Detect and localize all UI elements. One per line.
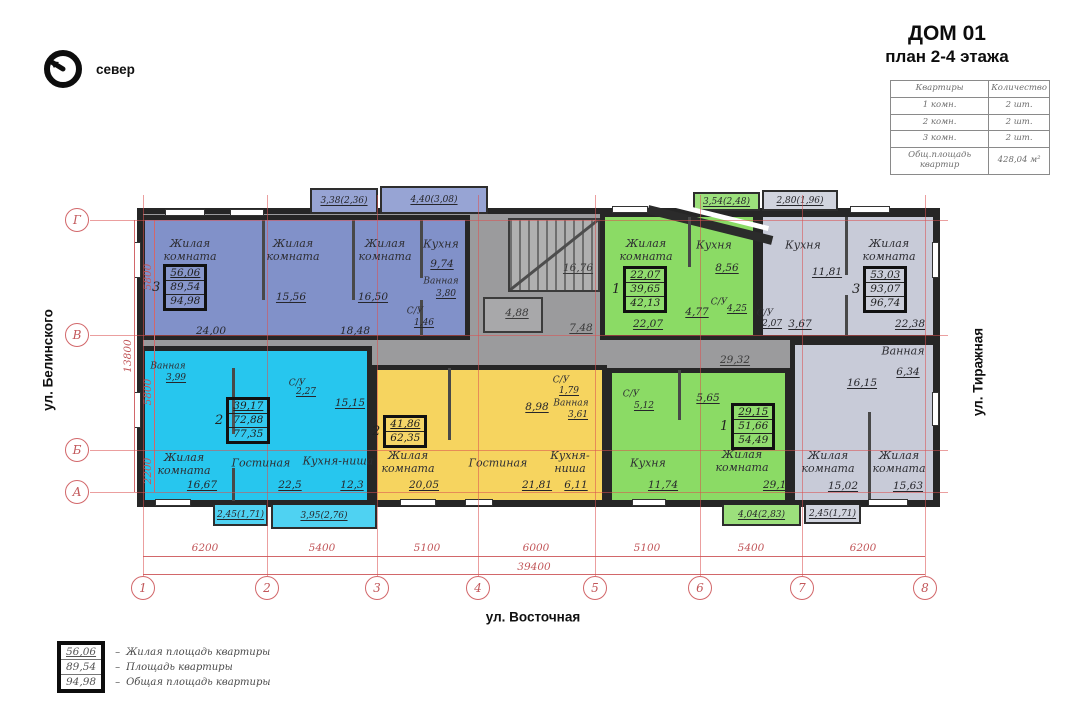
table-footer-row: Общ.площадь квартир 428,04 м² bbox=[891, 148, 1050, 175]
staircase bbox=[508, 218, 600, 292]
room-area: 1,46 bbox=[414, 318, 434, 328]
grid-bubble-6: 6 bbox=[688, 576, 712, 600]
window bbox=[465, 499, 493, 506]
dimension-value: 5100 bbox=[634, 542, 661, 554]
room-label: С/У bbox=[407, 307, 423, 318]
cell-count: 2 шт. bbox=[989, 114, 1050, 131]
living-area-value: 29,15 bbox=[734, 406, 772, 420]
room-area: 15,63 bbox=[893, 480, 923, 492]
apartment-area-box: 39,17 72,88 77,35 bbox=[226, 397, 270, 444]
room-area: 8,98 bbox=[525, 401, 548, 413]
room-area: 3,80 bbox=[436, 289, 456, 299]
cell-count: 2 шт. bbox=[989, 131, 1050, 148]
grid-line bbox=[802, 195, 803, 576]
apartment-area-value: 39,65 bbox=[626, 283, 664, 297]
living-area-value: 39,17 bbox=[229, 400, 267, 414]
apartment-area-value: 72,88 bbox=[229, 414, 267, 428]
total-area-value: 42,13 bbox=[626, 297, 664, 310]
room-area: 8,56 bbox=[715, 262, 738, 274]
balcony: 4,40(3,08) bbox=[380, 186, 488, 214]
room-label: Жилая комната bbox=[608, 237, 684, 263]
dimension-value: 5800 bbox=[142, 379, 154, 406]
balcony-area: 3,95(2,76) bbox=[300, 511, 347, 521]
room-area: 5,65 bbox=[696, 392, 719, 404]
window bbox=[165, 209, 205, 216]
grid-line bbox=[478, 195, 479, 576]
balcony: 2,80(1,96) bbox=[762, 190, 838, 211]
window bbox=[868, 499, 908, 506]
window bbox=[134, 392, 141, 428]
grid-bubble-8: 8 bbox=[913, 576, 937, 600]
dimension-line bbox=[143, 574, 925, 575]
title-block: ДОМ 01 план 2-4 этажа bbox=[832, 22, 1062, 67]
room-area: 4,25 bbox=[727, 304, 747, 314]
dimension-line bbox=[143, 556, 925, 557]
room-label: Кухня bbox=[785, 238, 821, 251]
room-area: 5,12 bbox=[634, 401, 654, 411]
legend-dash: – bbox=[115, 676, 120, 689]
cell-type: 2 комн. bbox=[891, 114, 989, 131]
elevator-area: 4,88 bbox=[505, 307, 528, 319]
window bbox=[155, 499, 191, 506]
dimension-value: 5400 bbox=[309, 542, 336, 554]
partition-wall bbox=[845, 295, 848, 335]
apartment-stats: 2 39,17 72,88 77,35 bbox=[215, 397, 270, 444]
balcony-area: 4,40(3,08) bbox=[410, 195, 457, 205]
room-label: Жилая комната bbox=[154, 237, 226, 263]
window bbox=[134, 242, 141, 278]
legend-row: – Площадь квартиры bbox=[115, 661, 270, 674]
apartment-area-box: 29,15 51,66 54,49 bbox=[731, 403, 775, 450]
cell-type: 1 комн. bbox=[891, 97, 989, 114]
north-arrow-icon bbox=[40, 46, 86, 92]
sheet-title: ДОМ 01 bbox=[832, 22, 1062, 46]
living-area-value: 22,07 bbox=[626, 269, 664, 283]
room-area: 2,07 bbox=[762, 319, 782, 329]
room-area: 20,05 bbox=[409, 479, 439, 491]
legend: 56,06 89,54 94,98 – Жилая площадь кварти… bbox=[57, 641, 271, 693]
table-row: 2 комн. 2 шт. bbox=[891, 114, 1050, 131]
total-area-value: 428,04 м² bbox=[989, 148, 1050, 175]
apartment-rooms-count: 2 bbox=[215, 413, 223, 428]
partition-wall bbox=[688, 217, 691, 267]
apartment-area-value: 51,66 bbox=[734, 420, 772, 434]
room-area: 9,74 bbox=[430, 258, 453, 270]
balcony-area: 2,80(1,96) bbox=[776, 196, 823, 206]
room-label: С/У bbox=[623, 390, 639, 401]
apartment-stats: 1 22,07 39,65 42,13 bbox=[612, 266, 667, 313]
apartment-area-value: 93,07 bbox=[866, 283, 904, 297]
grid-line bbox=[90, 220, 948, 221]
total-area-value: 94,98 bbox=[166, 295, 204, 308]
table-header-row: Квартиры Количество bbox=[891, 81, 1050, 98]
compass: север bbox=[40, 46, 135, 92]
balcony-area: 2,45(1,71) bbox=[809, 509, 856, 519]
sheet-subtitle: план 2-4 этажа bbox=[832, 47, 1062, 67]
apartment-area-box: 56,06 89,54 94,98 bbox=[163, 264, 207, 311]
room-label: Гостиная bbox=[469, 456, 528, 469]
legend-value: 89,54 bbox=[61, 660, 101, 675]
apartment-stats: 1 29,15 51,66 54,49 bbox=[720, 403, 775, 450]
dimension-total: 13800 bbox=[122, 339, 134, 372]
legend-label: Общая площадь квартиры bbox=[126, 676, 270, 689]
room-label: С/У bbox=[757, 309, 773, 320]
room-area: 21,81 bbox=[522, 479, 552, 491]
room-label: Ванная bbox=[423, 277, 458, 288]
room-label: Жилая комната bbox=[793, 449, 863, 475]
grid-bubble-g: Г bbox=[65, 208, 89, 232]
room-area: 22,5 bbox=[278, 479, 301, 491]
legend-dash: – bbox=[115, 646, 120, 659]
balcony-area: 2,45(1,71) bbox=[217, 510, 264, 520]
grid-line bbox=[90, 492, 948, 493]
legend-value: 94,98 bbox=[61, 675, 101, 689]
grid-bubble-7: 7 bbox=[790, 576, 814, 600]
room-area: 4,77 bbox=[685, 306, 708, 318]
grid-bubble-3: 3 bbox=[365, 576, 389, 600]
room-area: 6,34 bbox=[896, 366, 919, 378]
corridor-area: 7,48 bbox=[569, 322, 592, 334]
table-row: 1 комн. 2 шт. bbox=[891, 97, 1050, 114]
total-area-value: 77,35 bbox=[229, 428, 267, 441]
legend-row: – Общая площадь квартиры bbox=[115, 676, 270, 689]
window bbox=[400, 499, 436, 506]
room-area: 3,67 bbox=[788, 318, 811, 330]
dimension-value: 5400 bbox=[738, 542, 765, 554]
col-header-count: Количество bbox=[989, 81, 1050, 98]
room-label: Ванная bbox=[882, 344, 925, 357]
window bbox=[932, 242, 939, 278]
room-label: Ванная bbox=[150, 362, 185, 373]
room-area: 15,15 bbox=[335, 397, 365, 409]
room-area: 12,3 bbox=[340, 479, 363, 491]
grid-bubble-2: 2 bbox=[255, 576, 279, 600]
grid-bubble-1: 1 bbox=[131, 576, 155, 600]
apartment-rooms-count: 2 bbox=[372, 424, 380, 439]
window bbox=[850, 206, 890, 213]
cell-type: 3 комн. bbox=[891, 131, 989, 148]
grid-line bbox=[700, 195, 701, 576]
dimension-value: 5100 bbox=[414, 542, 441, 554]
room-label: Жилая комната bbox=[851, 237, 927, 263]
room-area: 3,61 bbox=[568, 410, 588, 420]
col-header-apartments: Квартиры bbox=[891, 81, 989, 98]
balcony-area: 3,54(2,48) bbox=[703, 197, 750, 207]
room-label: С/У bbox=[553, 376, 569, 387]
window bbox=[932, 392, 939, 426]
apartment-rooms-count: 1 bbox=[720, 419, 728, 434]
street-label-left: ул. Белинского bbox=[41, 309, 56, 411]
apartments-summary-table: Квартиры Количество 1 комн. 2 шт. 2 комн… bbox=[890, 80, 1050, 175]
room-area: 1,79 bbox=[559, 386, 579, 396]
room-area: 11,81 bbox=[812, 266, 842, 278]
grid-bubble-4: 4 bbox=[466, 576, 490, 600]
room-area: 22,07 bbox=[633, 318, 663, 330]
apartment-area-box: 41,86 62,35 bbox=[383, 415, 427, 448]
room-label: Кухня bbox=[423, 237, 459, 250]
partition-wall bbox=[448, 368, 451, 440]
balcony: 3,95(2,76) bbox=[271, 503, 377, 529]
apartment-rooms-count: 3 bbox=[852, 282, 860, 297]
room-label: Гостиная bbox=[232, 456, 291, 469]
room-area: 16,50 bbox=[358, 291, 388, 303]
stairs-area: 16,76 bbox=[563, 262, 593, 274]
partition-wall bbox=[678, 370, 681, 420]
legend-labels: – Жилая площадь квартиры – Площадь кварт… bbox=[115, 646, 270, 689]
street-label-bottom: ул. Восточная bbox=[486, 610, 580, 625]
partition-wall bbox=[232, 468, 235, 501]
room-label: Жилая комната bbox=[372, 449, 444, 475]
legend-label: Площадь квартиры bbox=[126, 661, 233, 674]
room-area: 16,15 bbox=[847, 377, 877, 389]
legend-box: 56,06 89,54 94,98 bbox=[57, 641, 105, 693]
legend-value: 56,06 bbox=[61, 645, 101, 660]
room-area: 3,99 bbox=[166, 373, 186, 383]
balcony: 3,54(2,48) bbox=[693, 192, 760, 211]
apartment-rooms-count: 3 bbox=[152, 280, 160, 295]
corridor-area: 29,32 bbox=[720, 354, 750, 366]
room-label: Кухня-ниша bbox=[303, 454, 374, 467]
apartment-stats: 3 53,03 93,07 96,74 bbox=[852, 266, 907, 313]
balcony-area: 4,04(2,83) bbox=[738, 510, 785, 520]
legend-row: – Жилая площадь квартиры bbox=[115, 646, 270, 659]
balcony: 3,38(2,36) bbox=[310, 188, 378, 214]
apartment-area-value: 89,54 bbox=[166, 281, 204, 295]
living-area-value: 41,86 bbox=[386, 418, 424, 432]
total-area-value: 54,49 bbox=[734, 434, 772, 447]
balcony: 2,45(1,71) bbox=[804, 503, 861, 524]
room-label: Кухня bbox=[630, 456, 666, 469]
apartment-rooms-count: 1 bbox=[612, 282, 620, 297]
dimension-value: 6000 bbox=[523, 542, 550, 554]
dimension-total: 39400 bbox=[517, 561, 550, 573]
room-label: Жилая комната bbox=[349, 237, 421, 263]
dimension-value: 6200 bbox=[850, 542, 877, 554]
legend-label: Жилая площадь квартиры bbox=[126, 646, 270, 659]
apartment-area-box: 22,07 39,65 42,13 bbox=[623, 266, 667, 313]
window bbox=[230, 209, 264, 216]
room-area: 6,11 bbox=[564, 479, 587, 491]
room-area: 15,56 bbox=[276, 291, 306, 303]
cell-count: 2 шт. bbox=[989, 97, 1050, 114]
grid-bubble-v: В bbox=[65, 323, 89, 347]
total-area-value: 62,35 bbox=[386, 432, 424, 445]
room-area: 18,48 bbox=[340, 325, 370, 337]
room-label: Кухня-ниша bbox=[547, 449, 593, 475]
room-label: Жилая комната bbox=[148, 451, 220, 477]
apartment-stats: 3 56,06 89,54 94,98 bbox=[152, 264, 207, 311]
legend-dash: – bbox=[115, 661, 120, 674]
balcony: 4,04(2,83) bbox=[722, 503, 801, 526]
dimension-value: 6200 bbox=[192, 542, 219, 554]
floor-plan-sheet: север ДОМ 01 план 2-4 этажа Квартиры Кол… bbox=[0, 0, 1080, 723]
room-label: С/У bbox=[711, 298, 727, 309]
grid-bubble-b: Б bbox=[65, 438, 89, 462]
room-label: Жилая комната bbox=[864, 449, 934, 475]
total-area-label: Общ.площадь квартир bbox=[891, 148, 989, 175]
grid-line bbox=[595, 195, 596, 576]
apartment-area-box: 53,03 93,07 96,74 bbox=[863, 266, 907, 313]
room-area: 2,27 bbox=[296, 387, 316, 397]
apartment-stats: 2 41,86 62,35 bbox=[372, 415, 427, 448]
room-label: Ванная bbox=[553, 399, 588, 410]
room-area: 24,00 bbox=[196, 325, 226, 337]
balcony: 2,45(1,71) bbox=[213, 503, 268, 526]
room-area: 15,02 bbox=[828, 480, 858, 492]
grid-bubble-5: 5 bbox=[583, 576, 607, 600]
dimension-line bbox=[134, 220, 135, 492]
room-area: 29,15 bbox=[763, 479, 793, 491]
balcony-area: 3,38(2,36) bbox=[320, 196, 367, 206]
room-area: 22,38 bbox=[895, 318, 925, 330]
grid-bubble-a: А bbox=[65, 480, 89, 504]
room-label: Жилая комната bbox=[706, 448, 778, 474]
table-row: 3 комн. 2 шт. bbox=[891, 131, 1050, 148]
room-area: 11,74 bbox=[648, 479, 678, 491]
room-label: Кухня bbox=[696, 238, 732, 251]
window bbox=[612, 206, 648, 213]
window bbox=[632, 499, 666, 506]
room-area: 16,67 bbox=[187, 479, 217, 491]
compass-label: север bbox=[96, 62, 135, 77]
total-area-value: 96,74 bbox=[866, 297, 904, 310]
partition-wall bbox=[845, 217, 848, 275]
room-label: Жилая комната bbox=[257, 237, 329, 263]
living-area-value: 53,03 bbox=[866, 269, 904, 283]
street-label-right: ул. Тиражная bbox=[971, 328, 986, 416]
living-area-value: 56,06 bbox=[166, 267, 204, 281]
